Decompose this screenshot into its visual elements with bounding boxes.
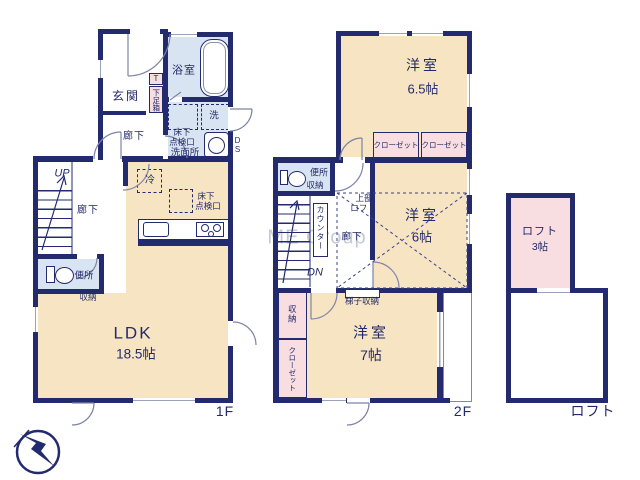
window bbox=[412, 31, 443, 36]
wall bbox=[98, 29, 103, 160]
stove-burner bbox=[213, 224, 221, 232]
stairs-1f bbox=[36, 182, 72, 257]
room-label-hall-lower: 廊下 bbox=[77, 206, 99, 216]
label-closet2: クローゼット bbox=[422, 141, 467, 149]
room-size-loft: 3帖 bbox=[532, 242, 548, 253]
door-opening bbox=[343, 157, 365, 163]
wall bbox=[570, 193, 575, 293]
label-hatch-kitchen-2: 点検口 bbox=[195, 202, 221, 211]
wall bbox=[506, 193, 575, 198]
bedroom2-area bbox=[373, 163, 467, 290]
floor-label-1f: 1F bbox=[216, 404, 234, 418]
kitchen-sink-icon bbox=[143, 222, 169, 237]
floor-label-2f: 2F bbox=[454, 404, 472, 418]
window bbox=[437, 312, 443, 367]
room-label-loft: ロフト bbox=[522, 227, 558, 238]
label-shoe-t: T bbox=[154, 75, 159, 83]
wall bbox=[33, 156, 93, 162]
window bbox=[467, 169, 472, 195]
window bbox=[467, 214, 472, 244]
label-closet3: クローゼット bbox=[288, 347, 296, 392]
window bbox=[322, 398, 346, 403]
room-size-bedroom2: 6帖 bbox=[412, 231, 432, 244]
door-opening bbox=[163, 135, 168, 159]
room-label-genkan: 玄関 bbox=[112, 90, 140, 102]
wall bbox=[228, 160, 233, 403]
label-fridge: 冷 bbox=[145, 176, 155, 186]
wall bbox=[33, 254, 77, 259]
wall bbox=[123, 156, 128, 186]
label-hatch-kitchen-1: 床下 bbox=[197, 192, 214, 201]
room-label-bedroom2: 洋室 bbox=[405, 208, 439, 222]
label-upper-loft-1: 上部 bbox=[355, 194, 372, 203]
washbasin-bowl bbox=[208, 137, 225, 154]
floor-plan: ME Group bbox=[0, 0, 640, 480]
toilet-1f-bowl bbox=[55, 267, 74, 284]
label-hatch-washroom-1: 床下 bbox=[173, 128, 190, 137]
wall bbox=[98, 111, 146, 115]
room-label-bedroom3: 洋室 bbox=[353, 326, 389, 341]
door-opening bbox=[311, 288, 336, 293]
loft-hatch-opening bbox=[537, 288, 570, 293]
floor-label-loft: ロフト bbox=[571, 404, 616, 418]
room-size-ldk: 18.5帖 bbox=[116, 347, 156, 361]
door-opening bbox=[347, 398, 370, 403]
wall bbox=[336, 31, 341, 163]
label-duct-space: DS bbox=[233, 136, 241, 154]
window bbox=[98, 60, 103, 78]
counter-front-wall bbox=[138, 240, 233, 246]
door-opening bbox=[228, 321, 233, 346]
bathtub-inner bbox=[203, 42, 226, 94]
window bbox=[33, 307, 38, 332]
window bbox=[171, 32, 197, 37]
stove-burner bbox=[208, 231, 214, 237]
room-label-ldk: LDK bbox=[113, 325, 152, 342]
label-hatch-washroom-2: 点検口 bbox=[169, 138, 195, 147]
room-label-toilet-1f: 便所 bbox=[74, 271, 93, 281]
toilet-2f-bowl bbox=[288, 171, 306, 187]
balcony bbox=[443, 292, 472, 402]
room-label-hall-upper: 廊下 bbox=[123, 132, 145, 142]
room-size-bedroom1: 6.5帖 bbox=[407, 83, 438, 96]
room-label-hall-2f: 廊下 bbox=[341, 232, 362, 242]
room-label-toilet-2f: 便所 bbox=[310, 169, 328, 178]
window bbox=[133, 398, 195, 403]
wall bbox=[506, 193, 511, 403]
door-opening bbox=[169, 97, 182, 102]
label-toilet-storage-2f: 収納 bbox=[306, 181, 323, 190]
room-size-bedroom3: 7帖 bbox=[360, 348, 382, 362]
stairs-2f bbox=[278, 196, 310, 287]
window bbox=[467, 74, 472, 107]
room-label-washroom: 洗面所 bbox=[171, 148, 200, 158]
wall bbox=[506, 288, 539, 293]
wall bbox=[99, 254, 104, 294]
room-label-bath: 浴室 bbox=[172, 66, 196, 77]
label-counter-2f: カウンター bbox=[316, 206, 324, 251]
stove-burner bbox=[201, 224, 209, 232]
wall bbox=[330, 163, 335, 196]
bedroom3-area bbox=[307, 293, 438, 398]
window bbox=[379, 31, 407, 36]
label-shoe-box: 下足箱 bbox=[152, 89, 160, 112]
underfloor-hatch-kitchen bbox=[169, 189, 193, 213]
label-closet1: クローゼット bbox=[374, 141, 419, 149]
toilet-1f-tank bbox=[46, 266, 55, 283]
door-opening bbox=[77, 254, 97, 259]
wall bbox=[273, 191, 335, 196]
door-opening bbox=[228, 107, 233, 131]
label-storage-2f: 収納 bbox=[288, 305, 297, 324]
label-stairs-up: UP bbox=[54, 169, 69, 180]
label-storage-1f: 収納 bbox=[79, 293, 96, 302]
room-label-bedroom1: 洋室 bbox=[406, 58, 440, 72]
label-upper-loft-2: ロフト bbox=[350, 204, 376, 213]
wall bbox=[33, 156, 38, 403]
label-stairs-dn: DN bbox=[307, 268, 323, 279]
toilet-2f-tank bbox=[280, 170, 288, 185]
wall bbox=[603, 288, 608, 403]
north-compass-icon bbox=[14, 430, 59, 473]
label-laundry: 洗 bbox=[209, 111, 219, 121]
label-ladder-storage: 梯子収納 bbox=[345, 297, 379, 306]
